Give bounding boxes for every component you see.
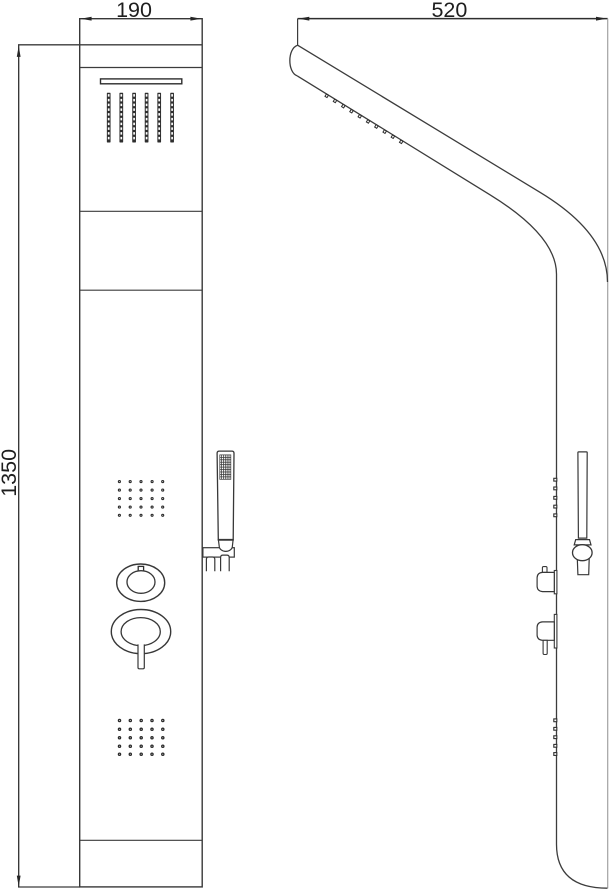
svg-text:1350: 1350 <box>0 449 21 497</box>
svg-text:520: 520 <box>431 0 467 22</box>
svg-text:190: 190 <box>116 0 152 22</box>
